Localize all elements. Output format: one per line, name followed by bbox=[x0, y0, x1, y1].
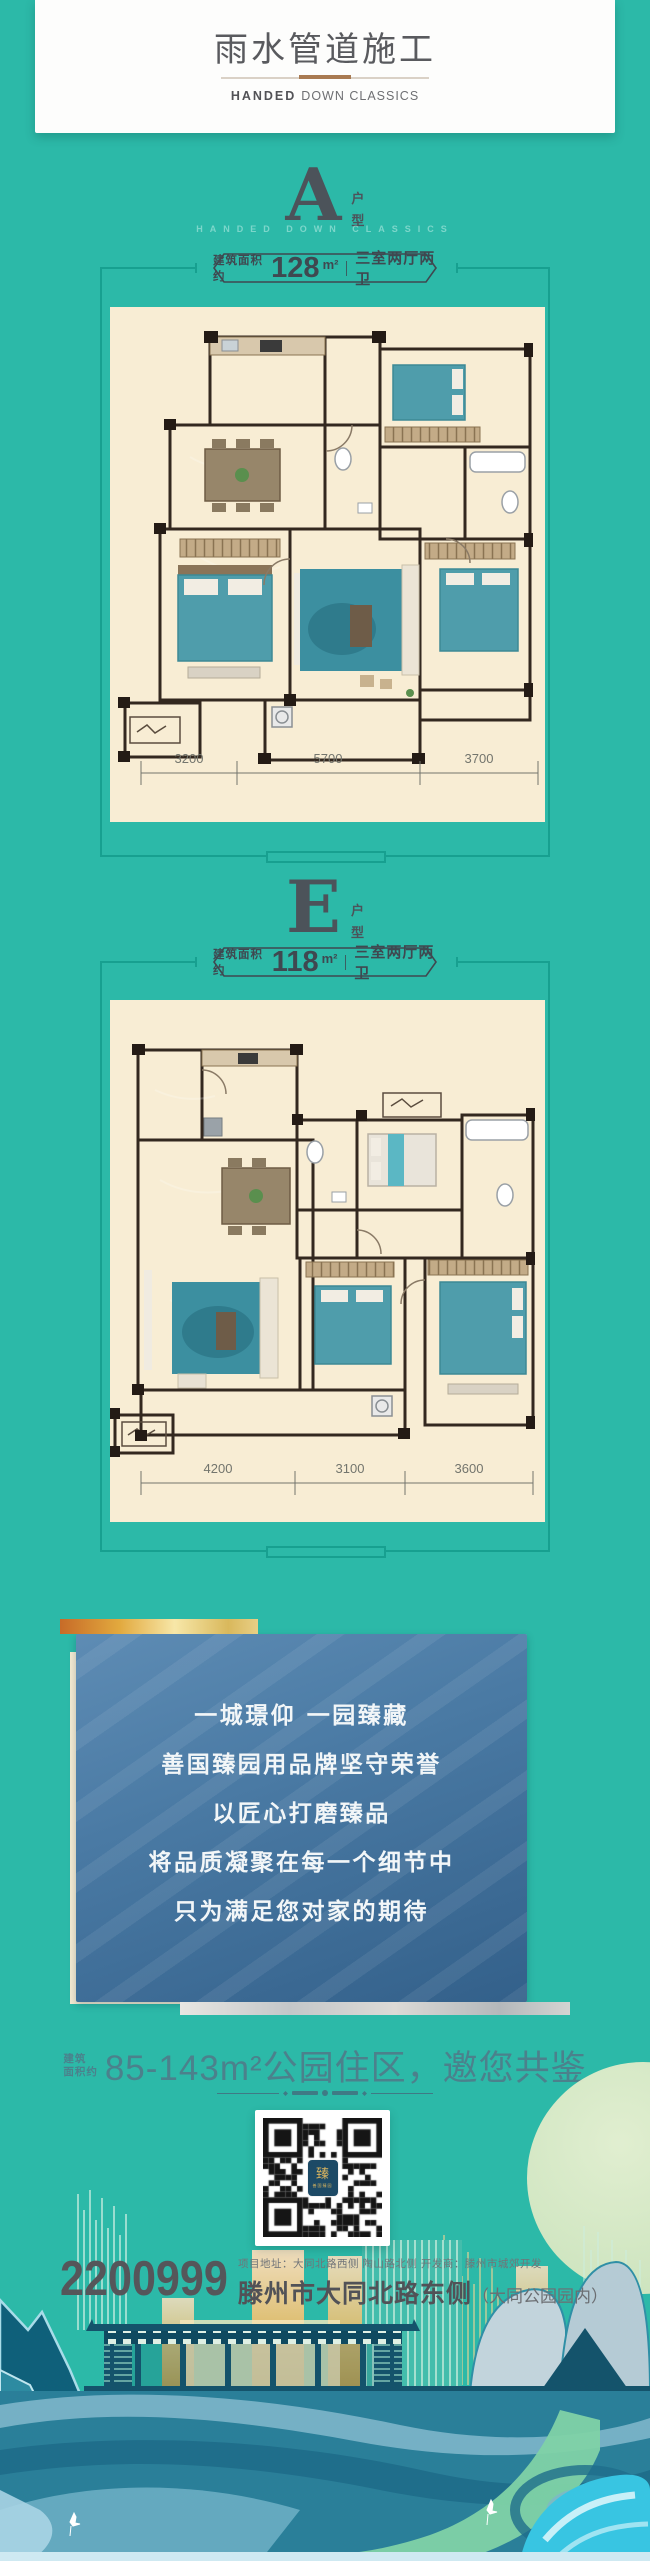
floorplan-card-a: 3200 5700 3700 bbox=[110, 307, 545, 822]
type-char: 型 bbox=[351, 922, 364, 941]
dim-label: 3700 bbox=[465, 751, 494, 766]
unit-type-label-e: 户 型 bbox=[351, 874, 364, 941]
dim-label: 3100 bbox=[336, 1461, 365, 1476]
address-small: 项目地址：大同北路西侧 陶山路北侧 开发商：滕州市城郊开发 bbox=[238, 2256, 608, 2271]
qr-logo-sub: 善国臻园 bbox=[313, 2183, 333, 2189]
header-card: 雨水管道施工 HANDEDDOWN CLASSICS bbox=[35, 0, 615, 133]
offer-text: 85-143m²公园住区，邀您共鉴 bbox=[105, 2040, 587, 2091]
bottom-strip bbox=[0, 2552, 650, 2561]
promo-line: 只为满足您对家的期待 bbox=[76, 1887, 527, 1936]
promo-line: 一城璟仰 一园臻藏 bbox=[76, 1691, 527, 1740]
address-block: 项目地址：大同北路西侧 陶山路北侧 开发商：滕州市城郊开发 滕州市大同北路东侧（… bbox=[238, 2256, 608, 2310]
header-divider-accent bbox=[299, 75, 351, 79]
offer-line: 建筑 面积约 85-143m²公园住区，邀您共鉴 bbox=[0, 2040, 650, 2091]
header-subtitle-rest: DOWN CLASSICS bbox=[301, 89, 419, 103]
type-char: 户 bbox=[351, 188, 364, 207]
unit-letter-a: A bbox=[286, 162, 342, 228]
section-e-header: E 户 型 bbox=[0, 874, 650, 941]
dim-label: 3600 bbox=[455, 1461, 484, 1476]
promo-line: 善国臻园用品牌坚守荣誉 bbox=[76, 1740, 527, 1789]
floorplan-card-e: 4200 3100 3600 bbox=[110, 1000, 545, 1522]
unit-type-label-a: 户 型 bbox=[351, 162, 364, 229]
type-char: 户 bbox=[351, 900, 364, 919]
offer-divider bbox=[0, 2090, 650, 2096]
marble-base-strip bbox=[180, 2002, 570, 2015]
floorplan-e: 4200 3100 3600 bbox=[110, 1000, 545, 1522]
gold-accent-bar bbox=[60, 1619, 258, 1634]
dim-label: 3200 bbox=[175, 751, 204, 766]
phone-number: 2200999 bbox=[60, 2251, 228, 2307]
frame-handle-e bbox=[266, 1546, 386, 1558]
section-a-caption: HANDED DOWN CLASSICS bbox=[0, 224, 650, 234]
header-subtitle-bold: HANDED bbox=[231, 89, 296, 103]
address-main: 滕州市大同北路东侧 bbox=[238, 2280, 472, 2308]
offer-prefix-top: 建筑 bbox=[63, 2053, 98, 2066]
promo-line: 以匠心打磨臻品 bbox=[76, 1789, 527, 1838]
address-note: （大同公园园内） bbox=[472, 2287, 608, 2306]
dim-label: 4200 bbox=[204, 1461, 233, 1476]
promo-line: 将品质凝聚在每一个细节中 bbox=[76, 1838, 527, 1887]
qr-card: 臻 善国臻园 bbox=[255, 2110, 390, 2246]
dim-label: 5700 bbox=[314, 751, 343, 766]
promo-text: 一城璟仰 一园臻藏 善国臻园用品牌坚守荣誉 以匠心打磨臻品 将品质凝聚在每一个细… bbox=[76, 1634, 527, 1936]
unit-letter-e: E bbox=[286, 874, 341, 940]
floorplan-a: 3200 5700 3700 bbox=[110, 307, 545, 822]
header-subtitle: HANDEDDOWN CLASSICS bbox=[35, 89, 615, 103]
page-title: 雨水管道施工 bbox=[35, 22, 615, 71]
qr-logo: 臻 善国臻园 bbox=[307, 2159, 339, 2197]
qr-logo-char: 臻 bbox=[316, 2168, 329, 2181]
offer-prefix-bottom: 面积约 bbox=[63, 2066, 98, 2079]
frame-handle-a bbox=[266, 851, 386, 863]
poster-page: 雨水管道施工 HANDEDDOWN CLASSICS A 户 型 HANDED … bbox=[0, 0, 650, 2561]
section-a-header: A 户 型 bbox=[0, 162, 650, 229]
promo-box: 一城璟仰 一园臻藏 善国臻园用品牌坚守荣誉 以匠心打磨臻品 将品质凝聚在每一个细… bbox=[76, 1634, 527, 2002]
offer-prefix: 建筑 面积约 bbox=[63, 2053, 98, 2078]
